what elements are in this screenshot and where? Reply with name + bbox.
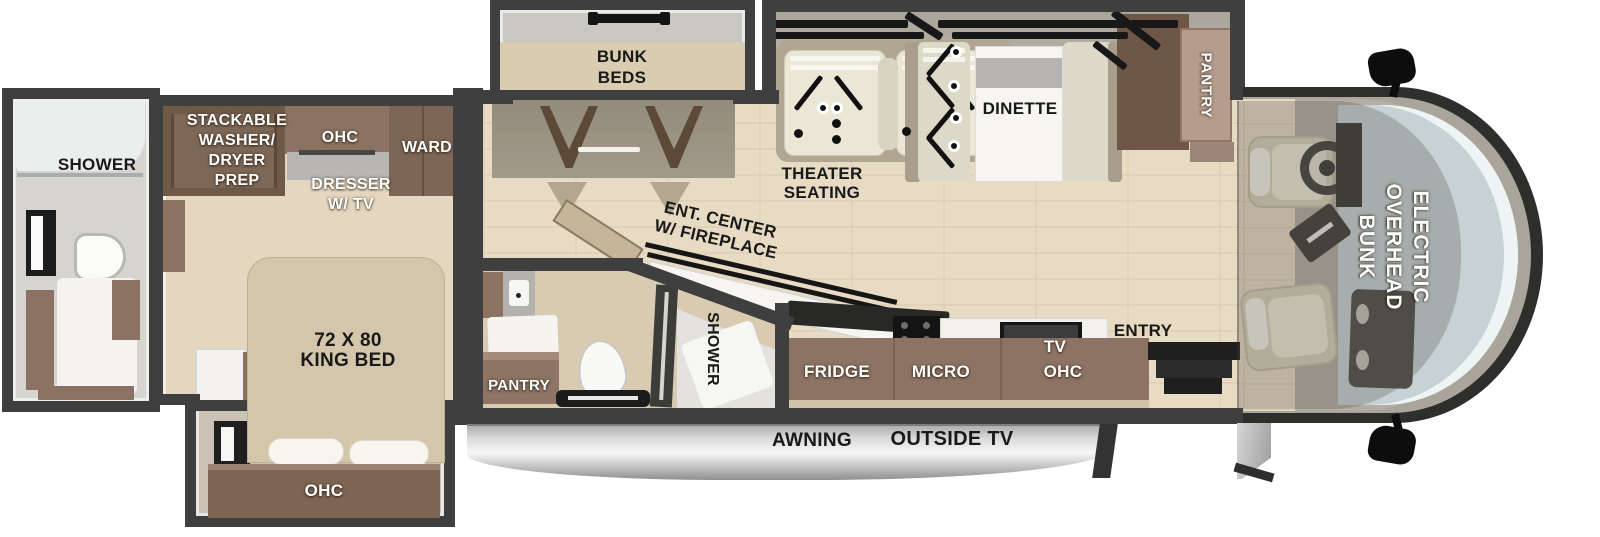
micro-label: MICRO: [891, 362, 991, 382]
arrow-pivot: [950, 46, 962, 58]
theater-center-armrest: [878, 58, 898, 150]
window-frame: [766, 20, 908, 28]
mid-bath-top-wall: [468, 258, 643, 271]
entry-step: [1148, 342, 1240, 360]
pillow: [268, 438, 344, 465]
slideout-right-wall: [1230, 0, 1245, 100]
rear-bath-window-pane: [31, 216, 43, 270]
washer-dryer-label: STACKABLE WASHER/ DRYER PREP: [162, 111, 312, 191]
ward-label: WARD: [387, 139, 467, 157]
dinette-label: DINETTE: [960, 99, 1080, 119]
bunk-handle-end: [660, 12, 670, 25]
entry-label: ENTRY: [1103, 321, 1183, 341]
window-frame: [952, 32, 1128, 39]
seat-stitch: [790, 65, 880, 70]
dresser-label: DRESSER W/ TV: [291, 175, 411, 215]
bath-mat-line: [568, 396, 638, 400]
rear-toilet: [74, 233, 126, 281]
mid-bath-cabinet: [481, 272, 503, 318]
bedroom-side-cabinet: [163, 200, 185, 272]
bedroom-nightstand: [195, 348, 247, 404]
seat-button: [794, 129, 803, 138]
side-mirror-icon: [1366, 423, 1418, 466]
seat-stitch: [790, 56, 880, 61]
slideout-top-wall: [762, 0, 1244, 12]
wall-bottom: [453, 408, 1253, 424]
rear-shower-label: SHOWER: [37, 155, 157, 175]
bunk-grab-handle: [592, 14, 668, 23]
king-bed-label: 72 X 80 KING BED: [283, 331, 413, 371]
arrow-pivot: [831, 102, 843, 114]
mid-bath-right-wall: [775, 303, 789, 411]
fridge-label: FRIDGE: [787, 362, 887, 382]
window-frame: [938, 20, 1126, 28]
awning-label: AWNING: [752, 430, 872, 452]
pillow: [349, 440, 429, 467]
bunk-handle-end: [588, 12, 598, 25]
faucet: [516, 293, 521, 298]
desk-handle: [578, 147, 640, 152]
overhead-bunk-label: ELECTRIC OVERHEAD BUNK: [1350, 147, 1434, 347]
rear-cabinet-right: [112, 280, 140, 340]
arrow-pivot: [948, 140, 960, 152]
theater-seating-label: THEATER SEATING: [762, 164, 882, 202]
slideout-left-wall: [762, 0, 776, 98]
bedroom-bottom-wall-segment: [152, 394, 200, 405]
burner: [901, 322, 908, 329]
pantry-step: [1190, 142, 1234, 162]
wall-top-left: [453, 90, 513, 104]
seat-button: [832, 135, 841, 144]
cabinet-seam: [1000, 338, 1002, 402]
kitchen-tv-label: TV: [1025, 337, 1085, 357]
bed-slide-window-pane: [221, 427, 234, 461]
dinette-table-leaf: [976, 58, 1062, 88]
rear-vanity-cabinet-left: [26, 290, 54, 390]
pantry-cabinet-face: PANTRY: [1180, 28, 1232, 142]
window-frame: [766, 32, 924, 39]
rv-floorplan: PANTRY: [0, 0, 1600, 537]
burner: [923, 322, 930, 329]
seat-button: [902, 127, 911, 136]
bunk-beds-label: BUNK BEDS: [567, 46, 677, 88]
entry-step: [1164, 378, 1222, 394]
bedroom-ohc-label: OHC: [300, 129, 380, 147]
seat-button: [832, 119, 841, 128]
mid-shower-label: SHOWER: [703, 299, 721, 399]
entry-step: [1156, 360, 1232, 378]
kitchen-ohc-label: OHC: [1023, 362, 1103, 382]
rear-vanity-cabinet-bottom: [38, 386, 134, 400]
mid-pantry-label: PANTRY: [479, 377, 559, 394]
pantry-label: PANTRY: [1198, 52, 1215, 118]
bed-slide-ohc-label: OHC: [284, 481, 364, 501]
outside-tv-label: OUTSIDE TV: [872, 428, 1032, 451]
arrow-pivot: [948, 80, 960, 92]
arrow-pivot: [817, 102, 829, 114]
